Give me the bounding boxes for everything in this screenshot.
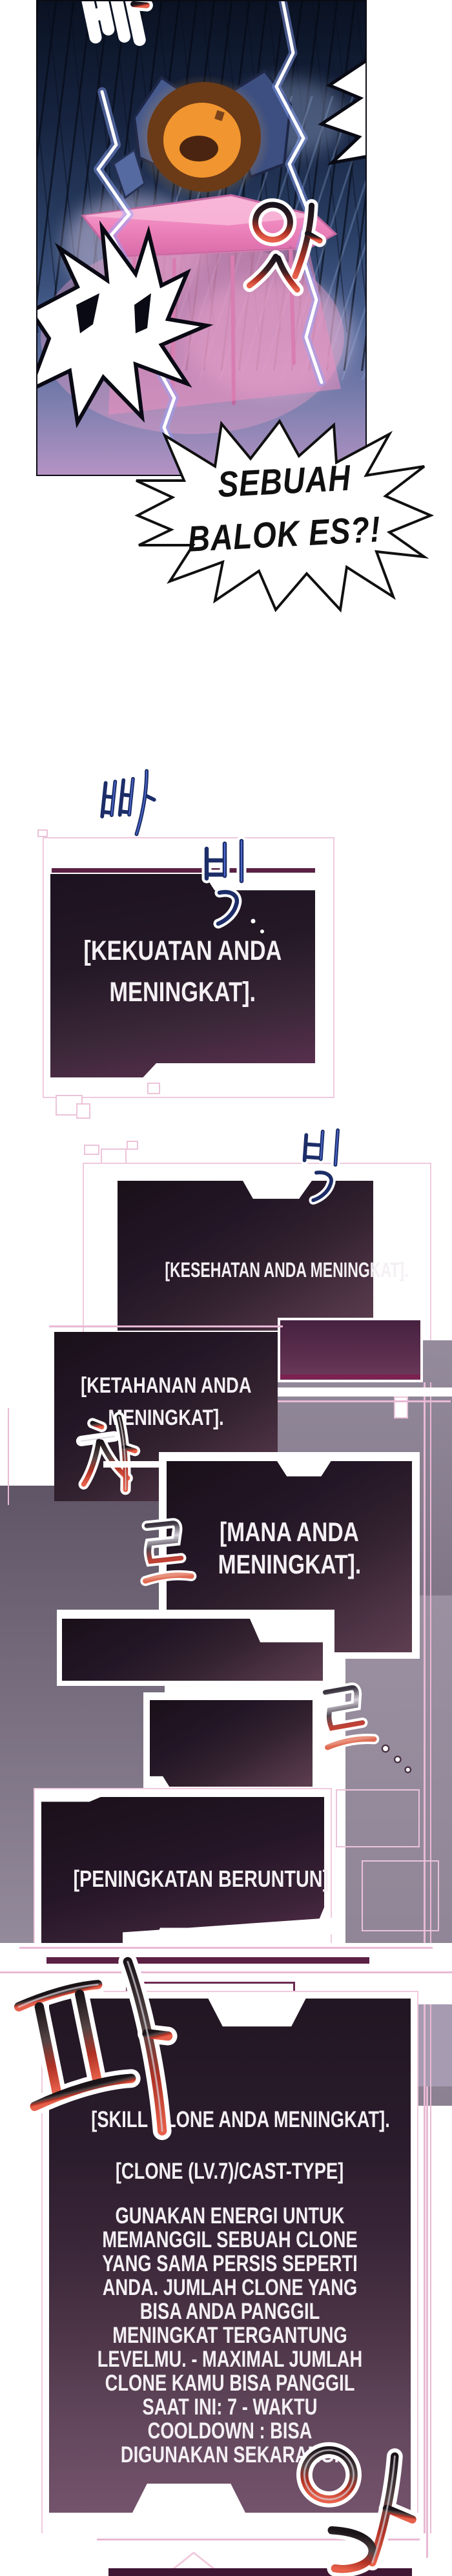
system-text: MENINGKAT]. (167, 1549, 412, 1580)
scene-art (37, 1, 367, 476)
deco-square (127, 1141, 138, 1150)
deco-maroon-bar (52, 868, 315, 873)
system-text-body: GUNAKAN ENERGI UNTUK MEMANGGIL SEBUAH CL… (53, 2204, 407, 2467)
deco-square (37, 829, 48, 837)
explosion-spikes (322, 59, 367, 163)
speech-bubble: SEBUAH BALOK ES?! (132, 419, 436, 612)
glowing-figure (135, 75, 271, 202)
frame-vertical-line (8, 1408, 9, 1505)
sfx-bba-blue-icon (98, 765, 156, 838)
comic-page: SEBUAH BALOK ES?! [KEKUATAN ANDA MENINGK… (0, 0, 452, 2576)
bubble-text-line2: BALOK ES?! (132, 513, 436, 555)
deco-outline-rect (336, 1789, 420, 1847)
deco-square (84, 1145, 99, 1155)
deco-maroon-bar (280, 1375, 420, 1379)
system-text: [KESEHATAN ANDA MENINGKAT]. (118, 1258, 373, 1282)
sfx-reu-1-icon (137, 1517, 196, 1594)
system-text: MENINGKAT]. (50, 977, 315, 1008)
sfx-pa-icon (18, 1962, 173, 2156)
sfx-bik-2-icon (296, 1127, 354, 1208)
frame-line (49, 1325, 283, 1327)
deco-outline-rect (362, 1860, 439, 1931)
deco-square (76, 1103, 90, 1119)
sfx-reu-2-icon (315, 1681, 418, 1778)
empty-system-box (150, 1700, 313, 1787)
system-box-kekuatan (50, 874, 315, 1077)
bubble-text-line1: SEBUAH (132, 460, 436, 502)
frame-line (19, 1947, 433, 1949)
system-text: [KETAHANAN ANDA (54, 1373, 278, 1398)
sfx-ak-icon (292, 2445, 427, 2576)
system-text: [PENINGKATAN BERUNTUN] (41, 1865, 324, 1893)
system-text: [KEKUATAN ANDA (50, 935, 315, 967)
frame-line (278, 1400, 451, 1402)
sfx-bba-red-icon (85, 0, 154, 48)
scene-panel (36, 0, 367, 476)
system-box-partial (278, 1318, 423, 1382)
sfx-bik-1-icon (198, 838, 269, 935)
deco-square (147, 1083, 160, 1094)
system-text-subtitle: [CLONE (LV.7)/CAST-TYPE] (49, 2159, 411, 2185)
system-text: [MANA ANDA (167, 1517, 412, 1548)
frame-band (278, 1387, 452, 1397)
frame-band (103, 1461, 168, 1468)
